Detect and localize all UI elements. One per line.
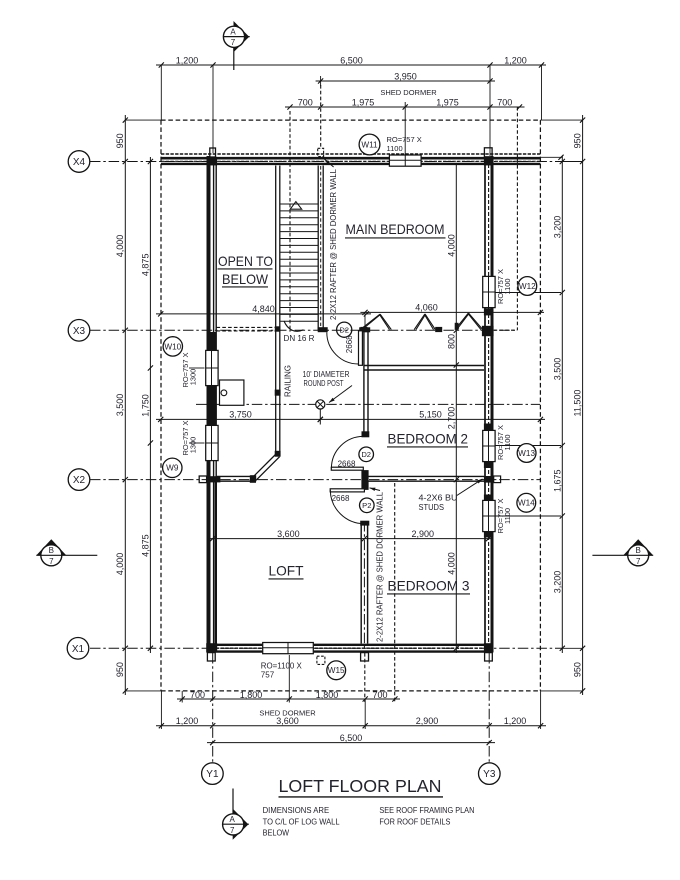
svg-text:7: 7 <box>636 557 641 566</box>
svg-text:Y1: Y1 <box>206 769 219 780</box>
svg-text:2668: 2668 <box>338 459 356 468</box>
svg-text:1300: 1300 <box>188 369 197 385</box>
svg-text:2,900: 2,900 <box>412 529 435 539</box>
svg-text:950: 950 <box>573 662 583 677</box>
svg-text:X2: X2 <box>73 475 86 486</box>
svg-text:W13: W13 <box>518 449 535 458</box>
svg-text:X3: X3 <box>73 326 86 337</box>
svg-text:2,700: 2,700 <box>446 407 456 430</box>
svg-text:3,750: 3,750 <box>229 410 252 420</box>
svg-text:RAILING: RAILING <box>284 365 293 397</box>
svg-text:950: 950 <box>573 133 583 148</box>
svg-text:6,500: 6,500 <box>340 55 363 65</box>
svg-text:D2: D2 <box>339 325 349 334</box>
svg-text:757: 757 <box>261 671 275 680</box>
svg-text:TO C/L OF LOG WALL: TO C/L OF LOG WALL <box>263 817 341 826</box>
svg-text:1,975: 1,975 <box>352 97 375 107</box>
svg-text:1100: 1100 <box>387 144 403 153</box>
svg-text:3,600: 3,600 <box>276 716 299 726</box>
svg-text:4,000: 4,000 <box>446 552 456 575</box>
svg-text:3,500: 3,500 <box>552 358 562 381</box>
svg-text:1,200: 1,200 <box>176 716 199 726</box>
svg-text:LOFT FLOOR PLAN: LOFT FLOOR PLAN <box>279 776 442 796</box>
svg-text:FOR ROOF DETAILS: FOR ROOF DETAILS <box>379 817 450 826</box>
svg-text:1,975: 1,975 <box>436 97 459 107</box>
svg-text:W10: W10 <box>164 342 181 351</box>
svg-text:4,000: 4,000 <box>115 235 125 258</box>
svg-text:X1: X1 <box>72 644 85 655</box>
svg-text:1,750: 1,750 <box>140 394 150 417</box>
svg-text:1100: 1100 <box>503 508 512 524</box>
svg-text:Y3: Y3 <box>483 769 496 780</box>
svg-text:4,000: 4,000 <box>446 234 456 257</box>
svg-text:1,800: 1,800 <box>316 690 339 700</box>
svg-text:3,200: 3,200 <box>552 216 562 239</box>
svg-text:950: 950 <box>115 133 125 148</box>
svg-text:W9: W9 <box>166 464 179 473</box>
svg-text:2,900: 2,900 <box>416 716 439 726</box>
svg-text:BELOW: BELOW <box>263 829 290 838</box>
svg-text:700: 700 <box>372 690 387 700</box>
svg-text:RO=757 X: RO=757 X <box>387 135 422 144</box>
svg-text:4,060: 4,060 <box>415 303 438 313</box>
svg-text:4,840: 4,840 <box>252 304 275 314</box>
svg-text:3,500: 3,500 <box>115 394 125 417</box>
svg-text:A: A <box>230 815 236 824</box>
svg-text:1,800: 1,800 <box>240 690 263 700</box>
svg-text:4-2X6 BU: 4-2X6 BU <box>419 493 458 502</box>
svg-text:DIMENSIONS ARE: DIMENSIONS ARE <box>263 806 330 815</box>
svg-text:7: 7 <box>230 826 235 835</box>
svg-text:BELOW: BELOW <box>222 271 269 287</box>
svg-text:1100: 1100 <box>503 279 512 295</box>
svg-text:SHED DORMER: SHED DORMER <box>380 88 437 97</box>
svg-text:3,600: 3,600 <box>277 529 300 539</box>
svg-text:ROUND POST: ROUND POST <box>304 379 344 388</box>
svg-text:W15: W15 <box>328 666 345 675</box>
svg-text:B: B <box>49 546 54 555</box>
svg-text:SEE ROOF FRAMING PLAN: SEE ROOF FRAMING PLAN <box>379 806 474 815</box>
svg-text:W14: W14 <box>518 499 535 508</box>
svg-text:STUDS: STUDS <box>419 503 445 512</box>
svg-text:4,000: 4,000 <box>115 553 125 576</box>
svg-text:7: 7 <box>49 557 54 566</box>
svg-text:LOFT: LOFT <box>269 563 304 579</box>
svg-text:P2: P2 <box>362 501 371 510</box>
svg-text:700: 700 <box>298 97 313 107</box>
svg-text:B: B <box>636 546 641 555</box>
svg-text:1100: 1100 <box>503 435 512 451</box>
svg-text:11,500: 11,500 <box>573 390 583 417</box>
svg-text:3,200: 3,200 <box>552 571 562 594</box>
svg-text:W11: W11 <box>361 140 378 149</box>
svg-text:W12: W12 <box>519 282 536 291</box>
svg-text:950: 950 <box>115 662 125 677</box>
svg-text:BEDROOM 3: BEDROOM 3 <box>388 578 470 594</box>
svg-text:3,950: 3,950 <box>394 71 417 81</box>
svg-text:4,875: 4,875 <box>140 534 150 557</box>
svg-text:A: A <box>230 27 236 36</box>
svg-text:700: 700 <box>497 97 512 107</box>
svg-text:BEDROOM 2: BEDROOM 2 <box>388 431 469 447</box>
svg-text:6,500: 6,500 <box>340 733 363 743</box>
svg-text:5,150: 5,150 <box>419 410 442 420</box>
svg-text:D2: D2 <box>361 450 371 459</box>
svg-text:7: 7 <box>231 38 236 47</box>
svg-text:OPEN TO: OPEN TO <box>218 253 273 269</box>
svg-text:1,675: 1,675 <box>552 469 562 492</box>
svg-text:2-2X12 RAFTER @ SHED DORMER WA: 2-2X12 RAFTER @ SHED DORMER WALL <box>376 491 385 642</box>
svg-text:DN 16 R: DN 16 R <box>284 334 315 343</box>
svg-text:10' DIAMETER: 10' DIAMETER <box>303 370 350 379</box>
svg-text:700: 700 <box>190 690 205 700</box>
svg-text:1,200: 1,200 <box>176 55 199 65</box>
svg-text:RO=1100 X: RO=1100 X <box>261 662 303 671</box>
svg-text:4,875: 4,875 <box>140 254 150 277</box>
svg-text:1,200: 1,200 <box>504 55 527 65</box>
svg-text:2668: 2668 <box>345 335 354 353</box>
svg-text:MAIN BEDROOM: MAIN BEDROOM <box>346 221 445 237</box>
svg-text:X4: X4 <box>73 157 86 168</box>
svg-text:2668: 2668 <box>332 494 350 503</box>
svg-text:1,200: 1,200 <box>504 716 527 726</box>
svg-text:800: 800 <box>446 334 456 349</box>
svg-text:2-2X12 RAFTER @ SHED DORMER WA: 2-2X12 RAFTER @ SHED DORMER WALL <box>329 168 338 320</box>
svg-text:1300: 1300 <box>188 437 197 453</box>
